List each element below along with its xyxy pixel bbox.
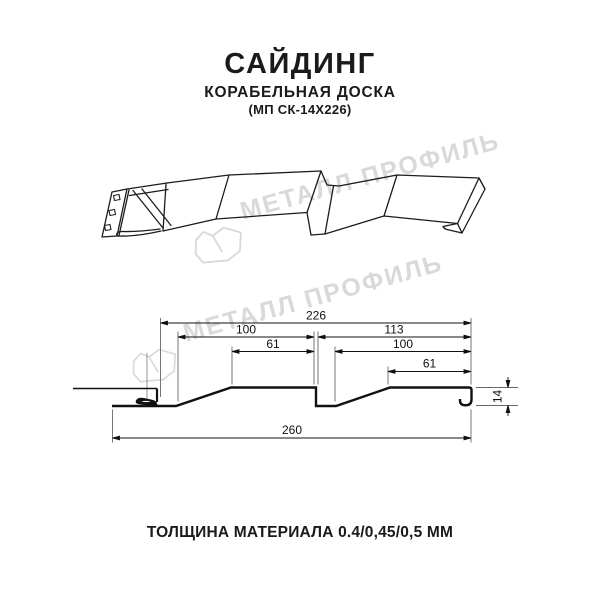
dim-label-board1-flat: 61 (266, 337, 280, 351)
dim-label-top-width: 226 (306, 309, 326, 323)
dimension-lines (113, 321, 510, 440)
siding-cross-section: 226 100 113 61 100 61 260 14 (60, 290, 560, 455)
panel-top-outline (167, 171, 485, 189)
dim-label-board2-span: 113 (384, 323, 403, 337)
dim-label-profile-height: 14 (491, 390, 505, 404)
dim-label-total-width: 260 (282, 423, 302, 437)
material-thickness-note: ТОЛЩИНА МАТЕРИАЛА 0.4/0,45/0,5 ММ (0, 524, 600, 542)
siding-3d-view (60, 165, 500, 265)
page-title: САЙДИНГ (0, 48, 600, 81)
dim-label-board2-width: 100 (393, 337, 413, 351)
panel-end-face (458, 178, 486, 233)
page-subtitle: КОРАБЕЛЬНАЯ ДОСКА (0, 84, 600, 102)
dim-label-board2-flat: 61 (423, 357, 437, 371)
dim-label-board1-width: 100 (236, 323, 256, 337)
profile-outline (73, 388, 472, 407)
product-model: (МП СК-14Х226) (0, 102, 600, 117)
product-drawing-page: САЙДИНГ КОРАБЕЛЬНАЯ ДОСКА (МП СК-14Х226)… (0, 0, 600, 600)
